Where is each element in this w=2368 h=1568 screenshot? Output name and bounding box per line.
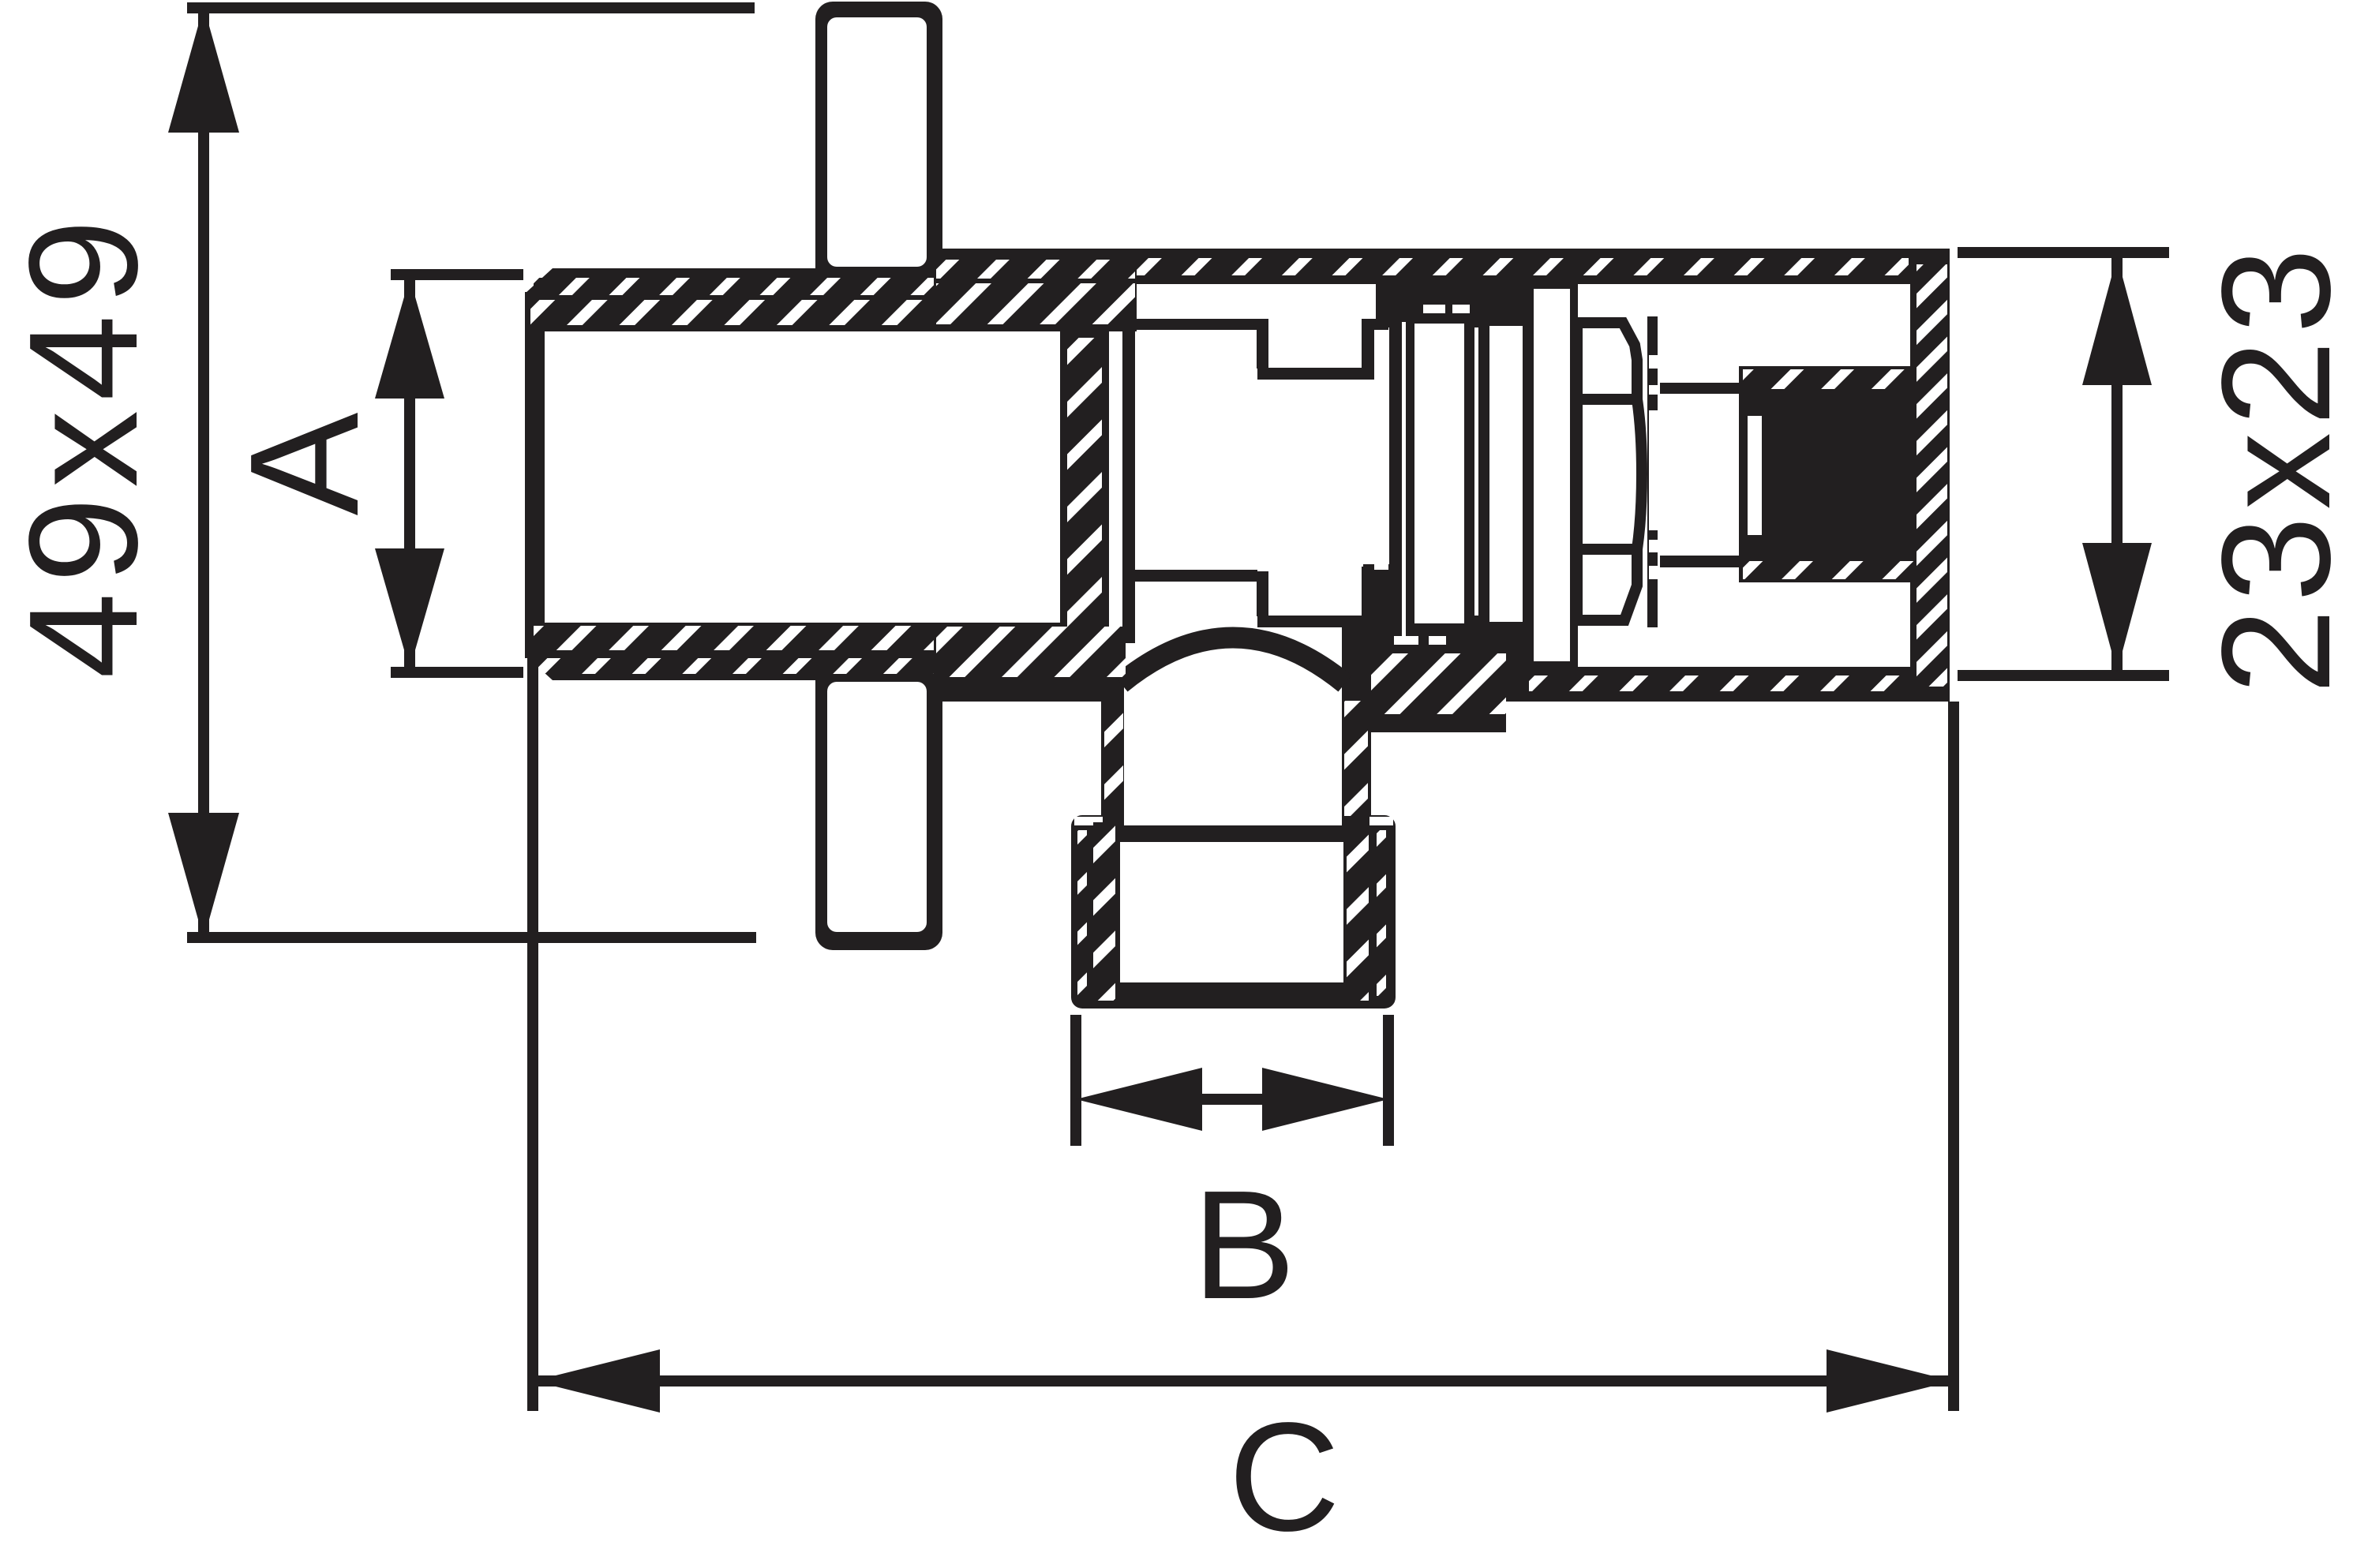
svg-text:C: C bbox=[1228, 1390, 1340, 1563]
svg-text:B: B bbox=[1193, 1158, 1296, 1331]
svg-text:49x49: 49x49 bbox=[0, 210, 170, 679]
svg-text:23x23: 23x23 bbox=[2190, 241, 2362, 694]
svg-text:A: A bbox=[218, 412, 391, 515]
